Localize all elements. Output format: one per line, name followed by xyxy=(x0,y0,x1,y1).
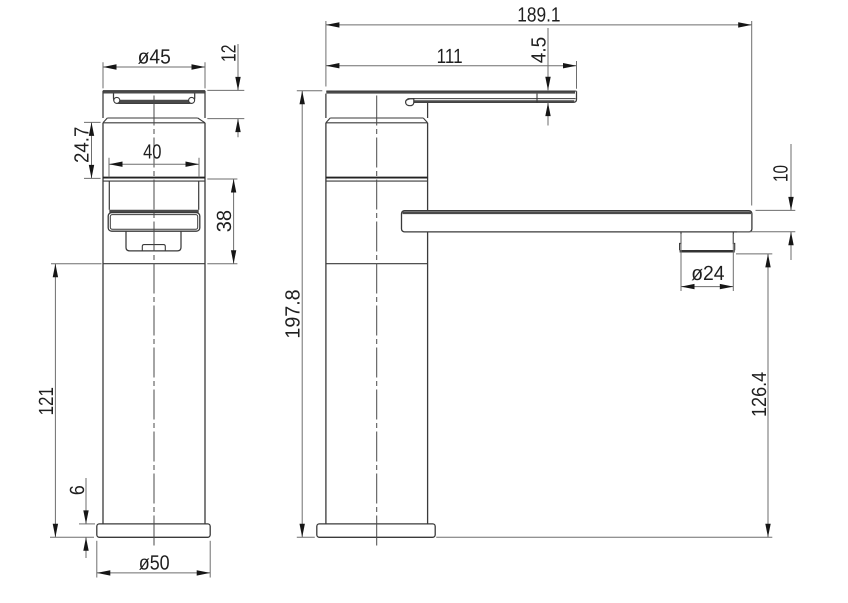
svg-text:6: 6 xyxy=(66,485,89,495)
svg-text:126.4: 126.4 xyxy=(748,372,771,417)
svg-text:ø45: ø45 xyxy=(138,46,171,69)
svg-text:12: 12 xyxy=(218,45,241,62)
svg-text:24.7: 24.7 xyxy=(71,127,94,163)
svg-text:197.8: 197.8 xyxy=(282,289,305,338)
svg-text:38: 38 xyxy=(213,210,236,232)
svg-text:189.1: 189.1 xyxy=(517,3,560,26)
svg-text:40: 40 xyxy=(143,141,161,164)
svg-text:10: 10 xyxy=(769,165,792,182)
svg-text:111: 111 xyxy=(437,45,463,68)
svg-text:121: 121 xyxy=(35,387,58,415)
svg-text:ø24: ø24 xyxy=(691,262,724,285)
svg-text:ø50: ø50 xyxy=(139,552,170,575)
svg-text:4.5: 4.5 xyxy=(527,37,550,63)
